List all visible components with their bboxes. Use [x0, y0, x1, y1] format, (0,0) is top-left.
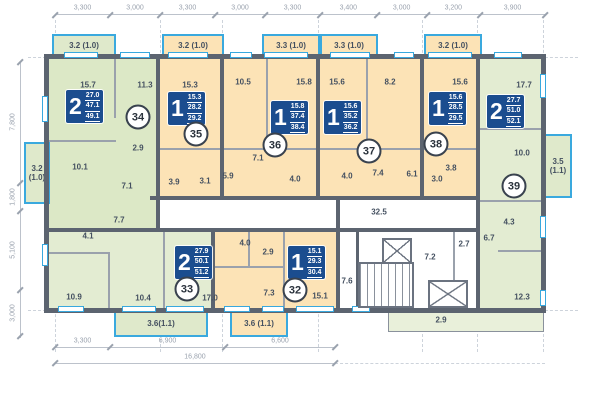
- room-area-label: 17.7: [516, 81, 532, 90]
- apartment-area-value: 27.7: [506, 96, 522, 106]
- room-area-label: 15.1: [312, 292, 328, 301]
- staircase: [358, 262, 414, 308]
- apartment-info-block[interactable]: 227.047.149.1: [66, 90, 103, 123]
- apartment-area-value: 36.2: [343, 123, 359, 133]
- apartment-info-block[interactable]: 115.635.236.2: [324, 101, 361, 134]
- apartment-area-list: 15.129.330.4: [307, 247, 323, 278]
- window: [224, 306, 250, 312]
- apartment-area-value: 15.3: [187, 93, 203, 103]
- dimension-label: 3,400: [340, 5, 358, 12]
- apartment-info-block[interactable]: 115.628.529.5: [429, 92, 466, 125]
- window: [58, 306, 84, 312]
- apartment-area-value: 38.4: [290, 123, 306, 133]
- wall: [150, 196, 478, 200]
- apartment-area-list: 15.328.229.2: [187, 93, 203, 124]
- partition: [46, 252, 108, 254]
- room-area-label: 6.1: [406, 170, 417, 179]
- apartment-area-value: 30.4: [307, 268, 323, 278]
- wall: [44, 308, 546, 313]
- apartment-area-list: 15.628.529.5: [448, 93, 464, 124]
- partition: [248, 230, 250, 266]
- apartment-area-value: 27.0: [85, 91, 101, 101]
- room-area-label: 4.0: [239, 239, 250, 248]
- room-area-label: 8.2: [384, 78, 395, 87]
- dimension-label: 3,300: [284, 5, 302, 12]
- apartment-area-value: 29.5: [448, 114, 464, 124]
- window: [330, 52, 370, 58]
- dimension-label: 3,000: [10, 304, 17, 322]
- room-area-label: 2.9: [132, 144, 143, 153]
- wall: [336, 198, 340, 308]
- dimension-label: 3,200: [445, 5, 463, 12]
- room-area-label: 15.7: [80, 81, 96, 90]
- room-area-label: 17.0: [202, 294, 218, 303]
- apartment-info-block[interactable]: 115.328.229.2: [168, 92, 205, 125]
- dimension-label: 3,900: [504, 5, 522, 12]
- apartment-area-value: 29.3: [307, 257, 323, 267]
- wall: [476, 58, 480, 308]
- room-area-label: 2.7: [458, 240, 469, 249]
- balcony: 3.6(1.1): [114, 311, 208, 337]
- apartment-area-list: 15.635.236.2: [343, 102, 359, 133]
- window: [166, 306, 204, 312]
- partition: [366, 58, 368, 148]
- room-area-label: 6.7: [483, 234, 494, 243]
- apartment-area-value: 50.1: [194, 257, 210, 267]
- window: [428, 52, 472, 58]
- room-area-label: 10.0: [514, 149, 530, 158]
- room-area-label: 10.9: [66, 293, 82, 302]
- room-area-label: 32.5: [371, 208, 387, 217]
- room-area-label: 4.3: [503, 218, 514, 227]
- window: [540, 290, 546, 306]
- apartment-room-count: 2: [69, 96, 82, 118]
- apartment-area-value: 15.6: [448, 93, 464, 103]
- room-area-label: 7.4: [372, 169, 383, 178]
- window: [264, 52, 308, 58]
- window: [262, 306, 284, 312]
- wall: [316, 58, 320, 198]
- room-area-label: 3.0: [431, 175, 442, 184]
- window: [122, 306, 156, 312]
- dimension-label: 3,300: [74, 338, 92, 345]
- room-area-label: 12.3: [514, 293, 530, 302]
- wall: [44, 54, 49, 313]
- wall: [46, 228, 478, 232]
- window: [540, 74, 546, 98]
- apartment-area-value: 37.4: [290, 112, 306, 122]
- room-area-label: 7.3: [263, 289, 274, 298]
- room-area-label: 4.0: [341, 172, 352, 181]
- floor-plan: 3.2 (1.0)3.2 (1.0)3.3 (1.0)3.3 (1.0)3.2 …: [0, 0, 600, 400]
- room-area-label: 4.1: [82, 232, 93, 241]
- balcony: 3.6 (1.1): [230, 311, 288, 337]
- window: [64, 52, 98, 58]
- apartment-area-value: 15.6: [343, 102, 359, 112]
- window: [494, 52, 522, 58]
- window: [42, 244, 48, 266]
- apartment-area-value: 35.2: [343, 112, 359, 122]
- apartment-number-badge[interactable]: 37: [357, 139, 382, 164]
- apartment-room-count: 1: [291, 252, 304, 274]
- room-area-label: 15.6: [329, 78, 345, 87]
- partition: [46, 140, 116, 142]
- dimension-label: 3,000: [126, 5, 144, 12]
- apartment-area-value: 51.2: [194, 268, 210, 278]
- apartment-room-count: 2: [178, 252, 191, 274]
- room-area-label: 2.9: [435, 316, 446, 325]
- apartment-info-block[interactable]: 115.837.438.4: [271, 101, 308, 134]
- room-area-label: 15.3: [182, 81, 198, 90]
- room-area-label: 2.9: [262, 248, 273, 257]
- room-area-label: 10.1: [72, 163, 88, 172]
- elevator-shaft: [382, 238, 412, 264]
- dimension-line: [55, 363, 335, 364]
- apartment-room-count: 1: [432, 98, 445, 120]
- partition: [478, 128, 541, 130]
- dimension-label: 3,300: [179, 5, 197, 12]
- window: [42, 96, 48, 122]
- dimension-line-extension: [335, 363, 545, 364]
- apartment-info-block[interactable]: 227.751.052.1: [487, 95, 524, 128]
- window: [394, 52, 414, 58]
- wall: [156, 58, 160, 230]
- apartment-area-list: 27.047.149.1: [85, 91, 101, 122]
- dimension-label: 3,300: [74, 5, 92, 12]
- apartment-room-count: 2: [490, 101, 503, 123]
- room-area-label: 11.3: [137, 81, 152, 90]
- apartment-area-value: 28.2: [187, 103, 203, 113]
- window: [230, 52, 252, 58]
- dimension-line: [20, 62, 21, 338]
- room-area-label: 10.4: [135, 294, 151, 303]
- balcony: 3.5 (1.1): [544, 134, 572, 198]
- apartment-area-list: 15.837.438.4: [290, 102, 306, 133]
- room-area-label: 7.1: [252, 154, 263, 163]
- partition: [108, 252, 110, 308]
- room-area-label: 3.1: [199, 177, 210, 186]
- room-area-label: 7.2: [424, 253, 435, 262]
- dimension-tick: [17, 333, 24, 340]
- apartment-number-badge[interactable]: 36: [263, 133, 288, 158]
- elevator-shaft: [428, 280, 468, 308]
- apartment-area-list: 27.751.052.1: [506, 96, 522, 127]
- apartment-area-value: 52.1: [506, 117, 522, 127]
- room-area-label: 5.9: [222, 172, 233, 181]
- apartment-info-block[interactable]: 227.950.151.2: [175, 246, 212, 279]
- apartment-number-badge[interactable]: 34: [126, 105, 151, 130]
- partition: [478, 200, 541, 202]
- apartment-info-block[interactable]: 115.129.330.4: [288, 246, 325, 279]
- dimension-label: 5,100: [10, 242, 17, 260]
- apartment-number-badge[interactable]: 35: [184, 122, 209, 147]
- dimension-label: 7,800: [10, 114, 17, 132]
- partition: [163, 230, 165, 308]
- partition: [453, 230, 455, 280]
- room-area-label: 7.6: [341, 277, 352, 286]
- dimension-line: [55, 347, 335, 348]
- apartment-room-count: 1: [171, 98, 184, 120]
- window: [120, 52, 150, 58]
- apartment-area-value: 47.1: [85, 101, 101, 111]
- dimension-label: 16,800: [184, 354, 205, 361]
- apartment-area-value: 15.1: [307, 247, 323, 257]
- room-area-label: 7.7: [113, 216, 124, 225]
- room-area-label: 7.1: [121, 182, 132, 191]
- partition: [498, 250, 541, 252]
- apartment-room-count: 1: [327, 107, 340, 129]
- window: [540, 216, 546, 238]
- dimension-label: 6,600: [271, 338, 289, 345]
- partition: [114, 58, 116, 118]
- dimension-tick: [542, 11, 549, 18]
- room-area-label: 15.6: [452, 78, 468, 87]
- apartment-area-value: 28.5: [448, 103, 464, 113]
- apartment-number-badge[interactable]: 38: [424, 132, 449, 157]
- partition: [213, 266, 283, 268]
- dimension-tick: [332, 344, 339, 351]
- dimension-label: 3,000: [231, 5, 249, 12]
- dimension-label: 6,900: [159, 338, 177, 345]
- apartment-number-badge[interactable]: 32: [283, 278, 308, 303]
- apartment-room-count: 1: [274, 107, 287, 129]
- entrance-porch: [388, 312, 544, 332]
- room-area-label: 3.9: [168, 178, 179, 187]
- room-area-label: 3.8: [445, 164, 456, 173]
- room-area-label: 10.5: [235, 78, 251, 87]
- apartment-area-list: 27.950.151.2: [194, 247, 210, 278]
- apartment-area-value: 15.8: [290, 102, 306, 112]
- window: [296, 306, 334, 312]
- room-area-label: 15.8: [296, 78, 312, 87]
- wall: [420, 58, 424, 198]
- dimension-label: 1,800: [10, 188, 17, 206]
- apartment-area-value: 49.1: [85, 112, 101, 122]
- apartment-number-badge[interactable]: 33: [175, 277, 200, 302]
- apartment-number-badge[interactable]: 39: [502, 174, 527, 199]
- dimension-label: 3,000: [393, 5, 411, 12]
- dimension-line: [55, 14, 545, 15]
- apartment-area-value: 51.0: [506, 106, 522, 116]
- apartment-area-value: 27.9: [194, 247, 210, 257]
- room-area-label: 4.0: [289, 175, 300, 184]
- window: [168, 52, 208, 58]
- partition: [158, 148, 220, 150]
